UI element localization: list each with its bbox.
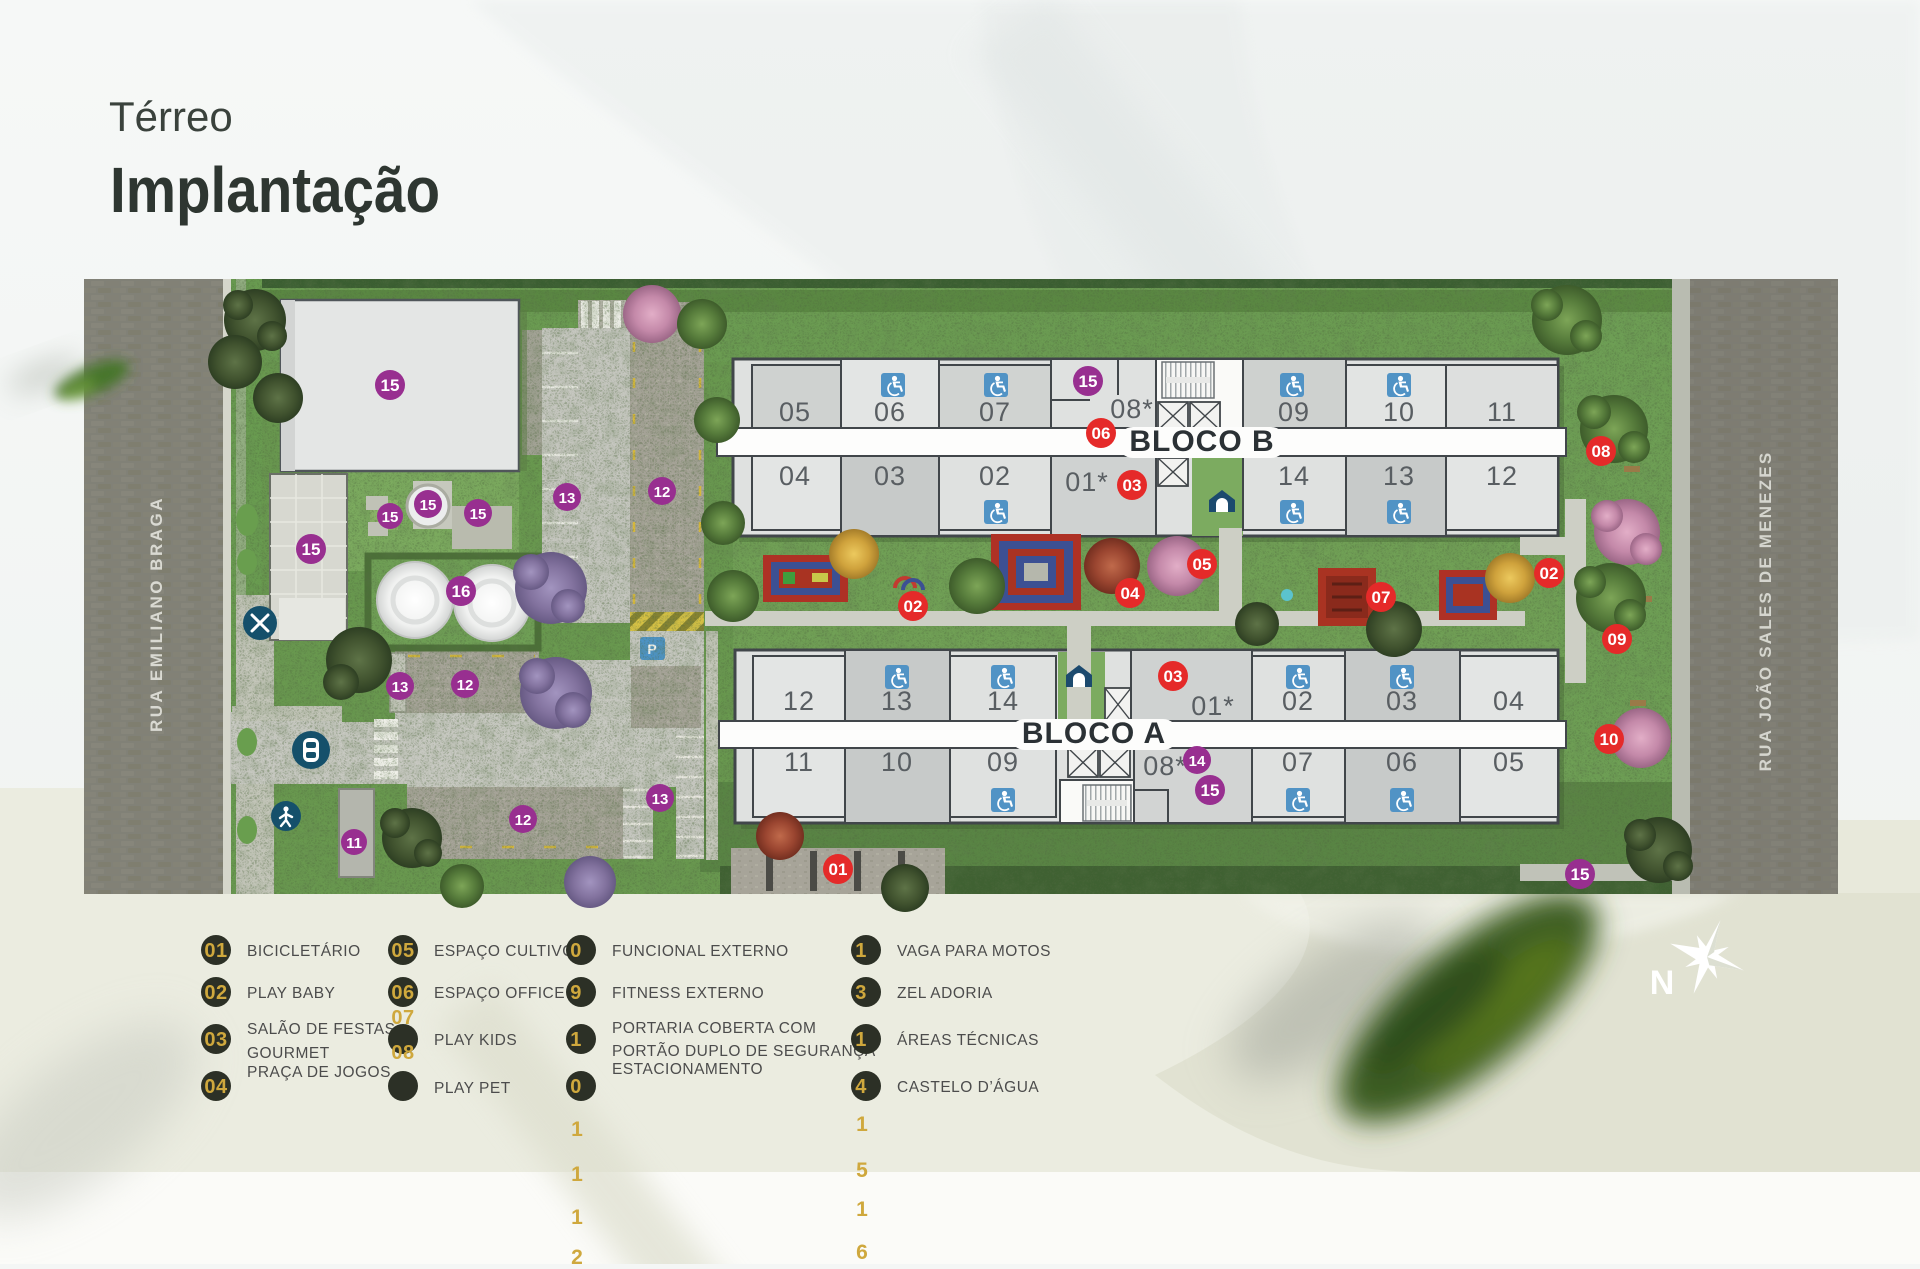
svg-text:0: 0: [570, 940, 582, 962]
svg-text:GOURMET: GOURMET: [247, 1045, 330, 1062]
svg-text:11: 11: [784, 747, 814, 777]
svg-text:BLOCO A: BLOCO A: [1022, 717, 1166, 750]
svg-text:02: 02: [904, 597, 923, 616]
svg-text:RUA EMILIANO BRAGA: RUA EMILIANO BRAGA: [147, 496, 166, 732]
svg-text:01: 01: [829, 860, 848, 879]
svg-text:03: 03: [204, 1029, 227, 1051]
svg-text:1: 1: [855, 1029, 867, 1051]
svg-text:08: 08: [1592, 442, 1611, 461]
svg-text:03: 03: [1164, 667, 1183, 686]
svg-text:4: 4: [855, 1076, 867, 1098]
svg-text:04: 04: [1121, 584, 1140, 603]
svg-text:FITNESS EXTERNO: FITNESS EXTERNO: [612, 985, 764, 1002]
svg-text:5: 5: [856, 1159, 868, 1182]
svg-text:9: 9: [570, 982, 582, 1004]
svg-text:09: 09: [987, 747, 1019, 777]
svg-text:PLAY PET: PLAY PET: [434, 1080, 511, 1097]
svg-text:04: 04: [1493, 686, 1525, 716]
svg-text:PLAY KIDS: PLAY KIDS: [434, 1032, 517, 1049]
svg-text:FUNCIONAL EXTERNO: FUNCIONAL EXTERNO: [612, 943, 789, 960]
svg-text:15: 15: [302, 540, 321, 559]
svg-text:03: 03: [874, 461, 906, 491]
svg-text:10: 10: [881, 747, 913, 777]
svg-text:14: 14: [1278, 461, 1310, 491]
svg-text:16: 16: [452, 582, 471, 601]
svg-text:15: 15: [1201, 781, 1220, 800]
svg-text:12: 12: [1486, 461, 1518, 491]
svg-text:PORTÃO DUPLO DE SEGURANÇA: PORTÃO DUPLO DE SEGURANÇA: [612, 1043, 876, 1060]
svg-text:6: 6: [856, 1241, 868, 1264]
svg-text:ESPAÇO OFFICE: ESPAÇO OFFICE: [434, 985, 565, 1002]
svg-text:12: 12: [783, 686, 815, 716]
svg-text:07: 07: [979, 397, 1011, 427]
svg-text:03: 03: [1386, 686, 1418, 716]
svg-text:N: N: [1650, 964, 1675, 1002]
svg-text:PRAÇA DE JOGOS: PRAÇA DE JOGOS: [247, 1064, 391, 1081]
svg-text:08*: 08*: [1143, 751, 1187, 781]
svg-text:15: 15: [420, 497, 437, 514]
svg-text:05: 05: [779, 397, 811, 427]
svg-text:02: 02: [979, 461, 1011, 491]
svg-text:08*: 08*: [1110, 394, 1154, 424]
svg-text:01*: 01*: [1191, 691, 1235, 721]
svg-text:11: 11: [1487, 397, 1517, 427]
svg-text:05: 05: [391, 940, 414, 962]
svg-text:13: 13: [559, 490, 576, 507]
svg-text:1: 1: [571, 1163, 583, 1186]
svg-text:14: 14: [987, 686, 1019, 716]
svg-text:06: 06: [1386, 747, 1418, 777]
svg-text:09: 09: [1608, 630, 1627, 649]
svg-text:06: 06: [1092, 424, 1111, 443]
svg-text:0: 0: [570, 1076, 582, 1098]
svg-text:1: 1: [856, 1113, 868, 1136]
svg-text:02: 02: [204, 982, 227, 1004]
svg-text:15: 15: [1571, 865, 1590, 884]
svg-text:13: 13: [652, 791, 669, 808]
svg-text:VAGA PARA MOTOS: VAGA PARA MOTOS: [897, 943, 1051, 960]
svg-text:ZEL ADORIA: ZEL ADORIA: [897, 985, 993, 1002]
svg-text:BLOCO B: BLOCO B: [1129, 425, 1274, 458]
svg-text:03: 03: [1123, 476, 1142, 495]
svg-text:07: 07: [1372, 588, 1391, 607]
svg-text:ESTACIONAMENTO: ESTACIONAMENTO: [612, 1061, 763, 1078]
svg-text:SALÃO DE FESTAS: SALÃO DE FESTAS: [247, 1021, 395, 1038]
svg-text:CASTELO D’ÁGUA: CASTELO D’ÁGUA: [897, 1079, 1039, 1096]
svg-text:05: 05: [1493, 747, 1525, 777]
svg-text:13: 13: [881, 686, 913, 716]
svg-text:2: 2: [571, 1246, 583, 1264]
svg-text:13: 13: [1383, 461, 1415, 491]
svg-text:06: 06: [874, 397, 906, 427]
svg-text:12: 12: [515, 812, 532, 829]
svg-text:01: 01: [204, 940, 227, 962]
svg-text:15: 15: [470, 506, 487, 523]
svg-text:02: 02: [1540, 564, 1559, 583]
svg-text:10: 10: [1383, 397, 1415, 427]
svg-text:01*: 01*: [1065, 467, 1109, 497]
svg-text:PLAY BABY: PLAY BABY: [247, 985, 335, 1002]
svg-text:12: 12: [457, 677, 474, 694]
svg-text:13: 13: [392, 679, 409, 696]
svg-text:Implantação: Implantação: [110, 154, 440, 226]
svg-text:3: 3: [855, 982, 867, 1004]
svg-text:14: 14: [1189, 753, 1206, 770]
svg-text:12: 12: [654, 484, 671, 501]
svg-text:10: 10: [1600, 730, 1619, 749]
svg-text:1: 1: [570, 1029, 582, 1051]
svg-text:15: 15: [381, 376, 400, 395]
svg-text:RUA JOÃO SALES DE MENEZES: RUA JOÃO SALES DE MENEZES: [1755, 451, 1775, 772]
svg-text:1: 1: [571, 1206, 583, 1229]
svg-text:1: 1: [855, 940, 867, 962]
svg-text:06: 06: [391, 982, 414, 1004]
svg-text:04: 04: [779, 461, 811, 491]
svg-text:15: 15: [382, 509, 399, 526]
svg-text:08: 08: [391, 1042, 414, 1064]
svg-text:PORTARIA COBERTA COM: PORTARIA COBERTA COM: [612, 1020, 816, 1037]
svg-text:1: 1: [856, 1198, 868, 1221]
svg-text:04: 04: [204, 1076, 228, 1098]
svg-text:05: 05: [1193, 555, 1212, 574]
svg-text:15: 15: [1079, 372, 1098, 391]
svg-text:07: 07: [1282, 747, 1314, 777]
svg-text:02: 02: [1282, 686, 1314, 716]
svg-text:09: 09: [1278, 397, 1310, 427]
svg-text:Térreo: Térreo: [109, 93, 233, 140]
svg-text:11: 11: [346, 835, 362, 852]
svg-text:ÁREAS TÉCNICAS: ÁREAS TÉCNICAS: [897, 1032, 1039, 1049]
svg-text:ESPAÇO CULTIVO: ESPAÇO CULTIVO: [434, 943, 575, 960]
svg-text:BICICLETÁRIO: BICICLETÁRIO: [247, 943, 361, 960]
svg-text:1: 1: [571, 1118, 583, 1141]
